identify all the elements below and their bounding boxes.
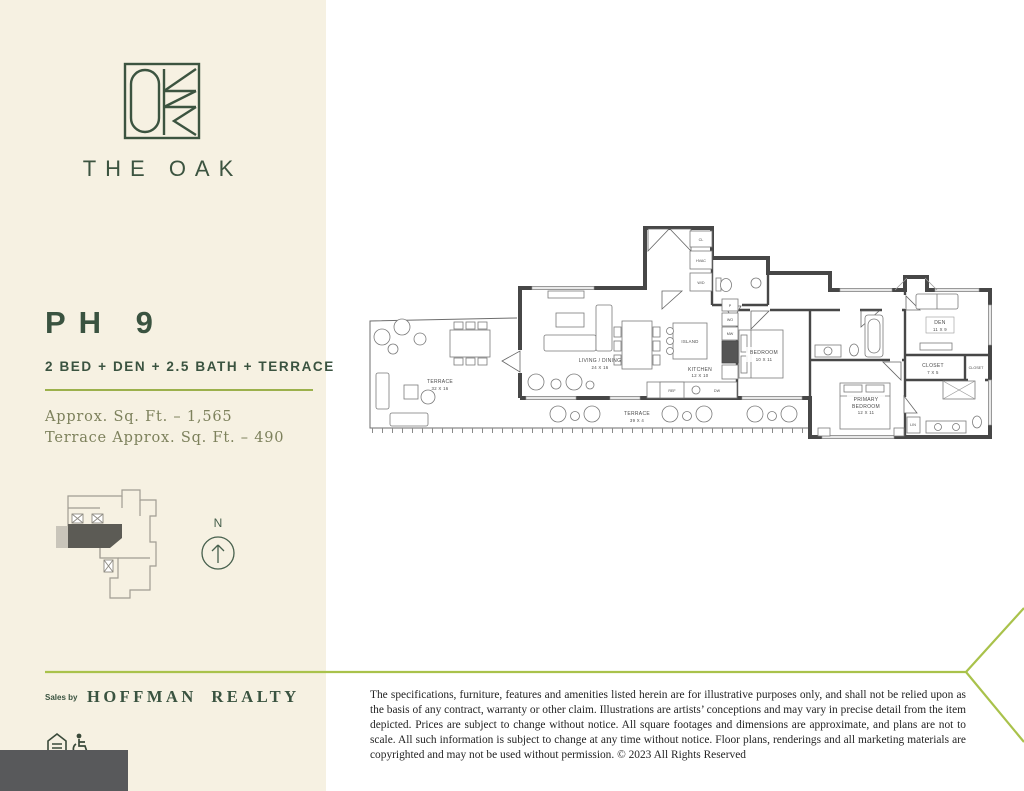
terrace-dims: 32 X 16 bbox=[432, 386, 449, 391]
kitchen-dims: 12 X 10 bbox=[692, 373, 709, 378]
keyplan-unit-highlight bbox=[68, 524, 122, 548]
bedroom-dims: 10 X 11 bbox=[756, 357, 773, 362]
brand-name: THE OAK bbox=[70, 156, 255, 182]
primary-label-1: PRIMARY bbox=[854, 397, 879, 403]
unit-subtitle: 2 BED + DEN + 2.5 BATH + TERRACE bbox=[45, 359, 335, 374]
oak-logo-icon bbox=[122, 61, 202, 141]
legal-disclaimer: The specifications, furniture, features … bbox=[370, 688, 966, 763]
cl-label: CL bbox=[699, 238, 704, 242]
primary-dims: 12 X 11 bbox=[858, 410, 875, 415]
hvac-label: HVAC bbox=[696, 259, 706, 263]
realty-name: HOFFMAN REALTY bbox=[87, 687, 300, 707]
microwave-label: MW bbox=[727, 332, 734, 336]
sqft-text: Approx. Sq. Ft. – 1,565 bbox=[45, 409, 232, 425]
closet-label: CLOSET bbox=[922, 363, 944, 369]
den-label: DEN bbox=[934, 320, 946, 326]
kitchen-fixtures bbox=[647, 299, 738, 398]
long-terrace-furniture bbox=[550, 406, 797, 422]
bath-fixtures bbox=[815, 315, 883, 357]
ref-label: REF bbox=[668, 389, 676, 393]
linen-label: LIN bbox=[910, 423, 916, 427]
flyer-page: THE OAK PH 9 2 BED + DEN + 2.5 BATH + TE… bbox=[0, 0, 1024, 791]
bright-mls-logo: bright ✦ MLS ™ bbox=[0, 750, 128, 791]
living-dims: 24 X 16 bbox=[592, 365, 609, 370]
north-label: N bbox=[214, 516, 223, 530]
keyplan-terrace-highlight bbox=[56, 526, 68, 548]
sales-by-label: Sales by bbox=[45, 693, 77, 702]
north-arrow: N bbox=[192, 512, 244, 578]
terrace-long-label: TERRACE bbox=[624, 411, 650, 417]
primary-bath-fixtures bbox=[907, 381, 982, 433]
terrace-furniture bbox=[374, 319, 490, 426]
powder-room-fixtures bbox=[716, 278, 761, 292]
wd-label: W/D bbox=[697, 281, 705, 285]
terrace-sqft-text: Terrace Approx. Sq. Ft. – 490 bbox=[45, 430, 284, 446]
terrace-long-dims: 39 X 4 bbox=[630, 418, 645, 423]
island-label: ISLAND bbox=[681, 339, 698, 344]
wall-oven-label: WO bbox=[727, 318, 733, 322]
terrace-label: TERRACE bbox=[427, 379, 453, 385]
closet-dims: 7 X 5 bbox=[927, 370, 939, 375]
living-furniture bbox=[528, 291, 660, 390]
living-label: LIVING / DINING bbox=[579, 358, 622, 364]
heading-divider bbox=[45, 389, 313, 391]
closet-small-label: CLOSET bbox=[969, 366, 985, 370]
dw-label: DW bbox=[714, 389, 721, 393]
unit-title: PH 9 bbox=[45, 305, 166, 341]
floorplan-drawing: TERRACE 32 X 16 LIVING / DINING 24 X 16 … bbox=[360, 215, 1000, 450]
keyplan-diagram bbox=[52, 486, 192, 604]
bedroom-label: BEDROOM bbox=[750, 350, 778, 356]
den-dims: 11 X 9 bbox=[933, 327, 947, 332]
